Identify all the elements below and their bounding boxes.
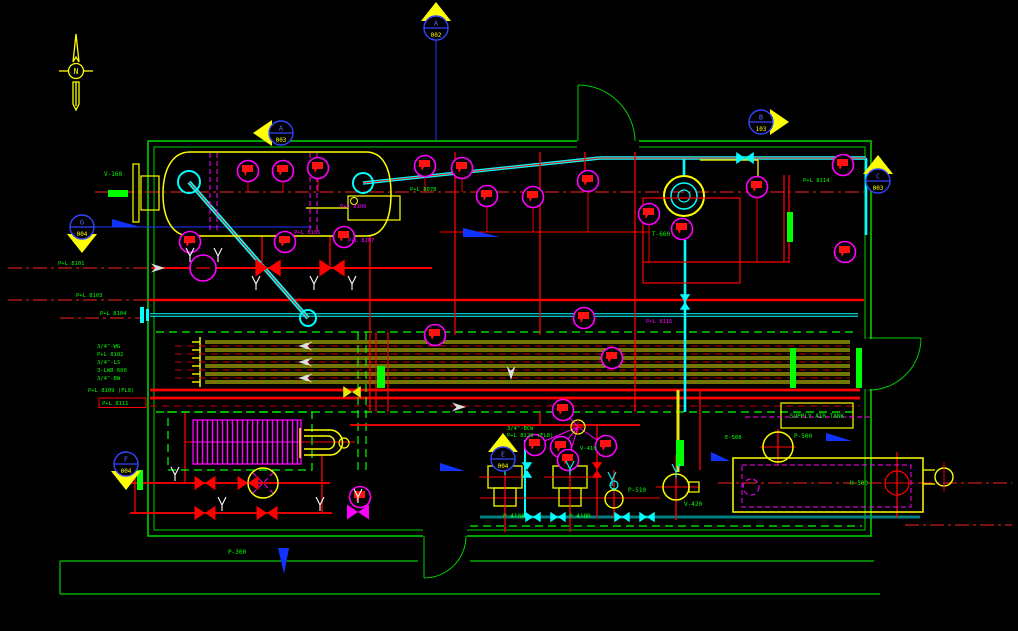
- valve: [680, 294, 691, 309]
- annotation-label: P+L 8104: [100, 311, 127, 317]
- instrument-bubble: [275, 232, 296, 253]
- instrument-bubble: [477, 186, 498, 207]
- compass-letter: N: [74, 67, 79, 76]
- annotation-label: P-510: [628, 487, 646, 494]
- vent-stem: [218, 497, 226, 511]
- equipment-pad: [790, 348, 796, 388]
- section-marker: G004: [67, 215, 97, 253]
- site-lines: [60, 561, 880, 594]
- annotation-label: V-160: [104, 171, 122, 178]
- section-marker: B103: [749, 109, 789, 135]
- north-arrow: N: [59, 34, 93, 110]
- valve: [257, 506, 278, 520]
- door-swing-right: [869, 338, 921, 390]
- vessel-v160: [133, 152, 391, 236]
- door-swing-top: [578, 85, 635, 141]
- annotation-label: P-300: [228, 549, 246, 556]
- valve: [736, 152, 754, 164]
- valve: [525, 512, 540, 523]
- vent-stem: [316, 497, 324, 511]
- marker-letter: B: [759, 114, 763, 122]
- vent-stem: [310, 276, 318, 290]
- instrument-bubble: [833, 155, 854, 176]
- door-swing-bottom: [424, 536, 466, 578]
- valves-layer: [195, 152, 754, 522]
- instrument-bubble: [425, 325, 446, 346]
- valve: [238, 476, 259, 490]
- section-marker: F004: [111, 452, 141, 490]
- annotation-label: P+L 8114: [803, 178, 830, 184]
- instrument-bubble: [672, 219, 693, 240]
- marker-letter: G: [80, 219, 84, 227]
- marker-number: 003: [276, 137, 287, 144]
- annotation-label: 3/4"-WG: [97, 344, 120, 350]
- instrument-bubble: [180, 232, 201, 253]
- instrument-bubble: [334, 227, 355, 248]
- annotation-label: P-500: [794, 433, 812, 440]
- equipment-pad: [377, 366, 385, 388]
- valve: [592, 462, 603, 477]
- marker-number: 004: [77, 231, 88, 238]
- annotation-label: T-660: [652, 231, 670, 238]
- valve: [614, 512, 629, 523]
- annotation-label: P+L 8106: [340, 204, 367, 210]
- equipment-pad: [856, 348, 862, 388]
- annotation-label: P+L 8109 (FL8): [88, 388, 134, 394]
- instrument-bubble: [747, 177, 768, 198]
- section-marker: A002: [421, 2, 451, 40]
- valve: [195, 476, 216, 490]
- instrument-bubble: [350, 487, 371, 508]
- annotation-label: P+L 8101: [58, 261, 85, 267]
- section-marker: C003: [863, 155, 893, 193]
- annotation-label: P+L 8078: [410, 187, 437, 193]
- equipment-pad: [108, 190, 128, 197]
- equipment-pad: [676, 440, 684, 466]
- instrument-bubble: [602, 348, 623, 369]
- annotation-label: 3/4"-LS: [97, 360, 120, 366]
- instrument-bubble: [639, 204, 660, 225]
- marker-letter: E: [501, 451, 505, 459]
- annotation-label: V-410: [580, 446, 597, 452]
- instrument-bubble: [415, 156, 436, 177]
- cad-drawing-canvas[interactable]: N: [0, 0, 1018, 631]
- annotation-label: P-410B: [569, 513, 591, 520]
- vent-stem: [348, 276, 356, 290]
- annotation-label: 3/4"-BCW: [507, 426, 534, 432]
- flow-wedges: [112, 219, 852, 574]
- annotation-label: 3/4"-BW: [97, 376, 121, 382]
- piping-plan-drawing: N: [0, 0, 1018, 631]
- annotation-label: 3-LWR 600: [97, 368, 127, 374]
- instrument-bubble: [574, 308, 595, 329]
- valve: [639, 512, 654, 523]
- instrument-bubble: [835, 242, 856, 263]
- instrument-bubble: [273, 161, 294, 182]
- marker-number: 004: [121, 468, 132, 475]
- annotation-label: P+L 8116: [646, 319, 673, 325]
- annotation-label: P+L 8111: [102, 401, 129, 407]
- instrument-bubble: [578, 171, 599, 192]
- marker-number: 002: [431, 32, 442, 39]
- valve: [550, 512, 565, 523]
- valve: [319, 259, 344, 276]
- annotation-label: P+L 8103: [76, 293, 103, 299]
- vent-stem: [171, 467, 179, 481]
- instrument-bubble: [596, 436, 617, 457]
- annotation-label: V-420: [684, 501, 702, 508]
- marker-letter: F: [124, 456, 128, 464]
- equipment-pad: [787, 212, 793, 242]
- instrument-bubble: [523, 187, 544, 208]
- section-marker: A003: [253, 120, 293, 146]
- cyan-diagonal-top: [363, 158, 866, 183]
- annotation-label: P+L 8102: [97, 352, 124, 358]
- instrument-bubble: [553, 400, 574, 421]
- marker-number: 004: [498, 463, 509, 470]
- u-tube: [300, 428, 343, 458]
- annotation-label: E-508: [725, 435, 742, 441]
- annotation-label: P+L 8105: [294, 230, 321, 236]
- instrument-bubble: [558, 450, 579, 471]
- instrument-bubble: [452, 158, 473, 179]
- annotation-label: P+L 8120 (FL8): [507, 433, 553, 439]
- marker-number: 103: [756, 126, 767, 133]
- annotation-label: H-500: [850, 480, 868, 487]
- annotation-label: P+L 8107: [348, 238, 375, 244]
- valve: [195, 506, 216, 520]
- instrument-bubble: [308, 158, 329, 179]
- instrument-bubble: [238, 161, 259, 182]
- marker-letter: C: [876, 173, 880, 181]
- valve: [522, 462, 533, 477]
- annotation-label: P-410A: [503, 513, 525, 520]
- vent-stem: [214, 248, 222, 262]
- flow-arrow: [452, 403, 466, 412]
- vent-stem: [252, 276, 260, 290]
- annotation-label: SUPPLY AIR TANK: [790, 413, 845, 420]
- vent-stem: [608, 472, 616, 486]
- marker-number: 003: [873, 185, 884, 192]
- exchanger-h500: [733, 458, 953, 512]
